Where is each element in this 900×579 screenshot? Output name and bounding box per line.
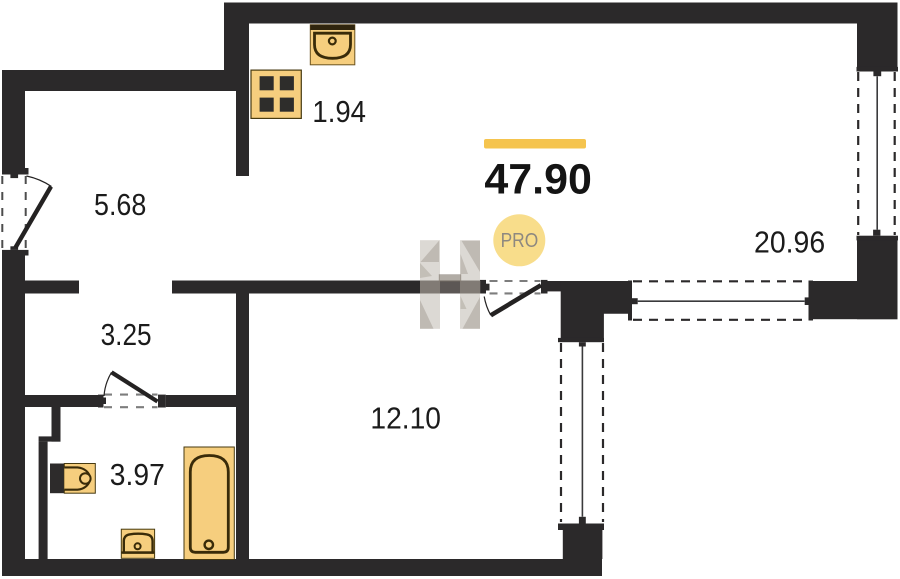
svg-text:PRO: PRO (501, 230, 539, 252)
svg-text:12.10: 12.10 (370, 402, 441, 436)
svg-text:1.94: 1.94 (312, 95, 366, 129)
svg-text:3.25: 3.25 (101, 318, 152, 352)
svg-text:47.90: 47.90 (484, 156, 592, 204)
svg-text:5.68: 5.68 (94, 188, 146, 222)
svg-text:3.97: 3.97 (110, 458, 165, 492)
svg-text:20.96: 20.96 (754, 226, 825, 260)
